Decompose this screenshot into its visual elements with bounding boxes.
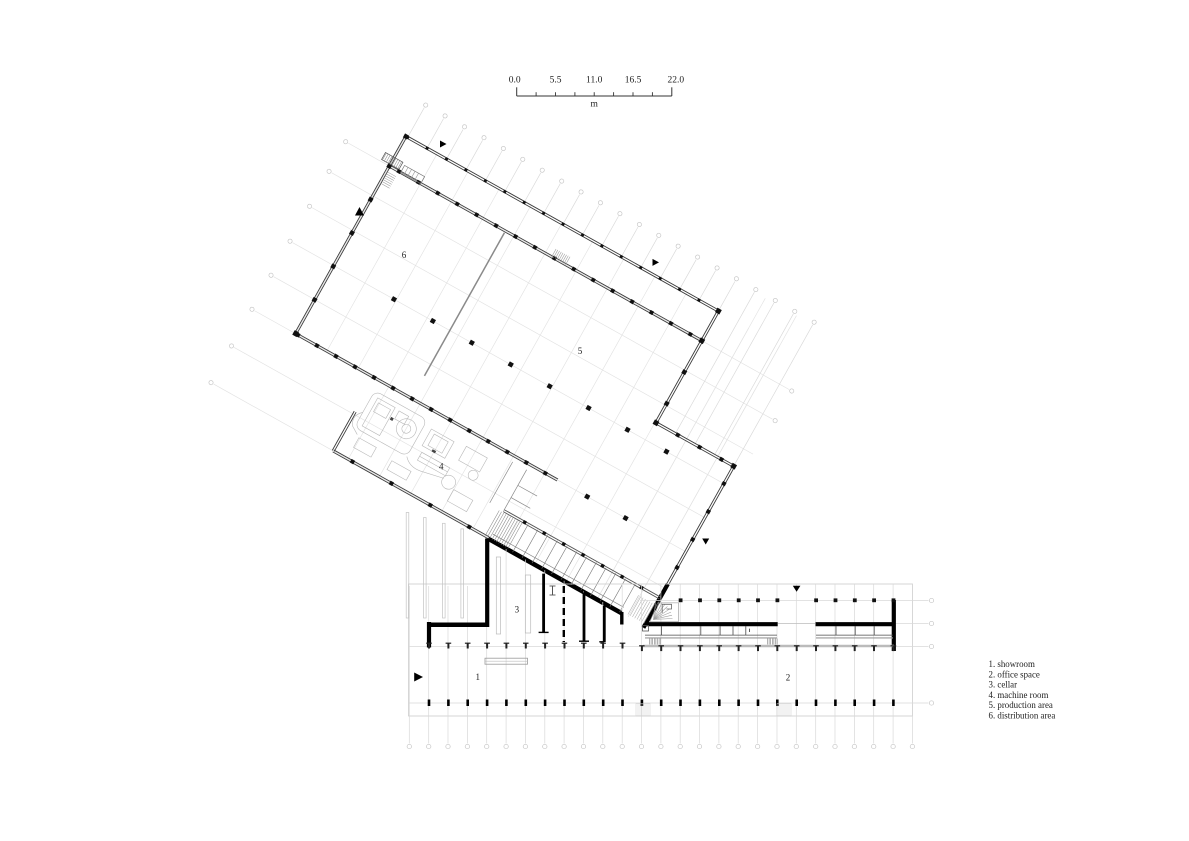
svg-text:2: 2 [786, 673, 791, 683]
svg-text:16.5: 16.5 [625, 76, 642, 86]
svg-text:4. machine room: 4. machine room [989, 690, 1049, 700]
svg-text:4: 4 [439, 462, 444, 472]
svg-text:2. office space: 2. office space [989, 669, 1040, 679]
svg-text:6: 6 [402, 250, 407, 260]
svg-text:11.0: 11.0 [586, 76, 603, 86]
svg-text:3: 3 [515, 605, 520, 615]
svg-text:1: 1 [475, 672, 480, 682]
svg-text:22.0: 22.0 [667, 76, 684, 86]
svg-text:5: 5 [578, 346, 583, 356]
svg-text:5.5: 5.5 [550, 76, 562, 86]
svg-text:6. distribution area: 6. distribution area [989, 711, 1056, 721]
svg-text:3. cellar: 3. cellar [989, 680, 1018, 690]
svg-text:m: m [591, 100, 599, 110]
svg-text:5. production area: 5. production area [989, 700, 1053, 710]
svg-text:0.0: 0.0 [509, 76, 521, 86]
svg-text:1. showroom: 1. showroom [989, 659, 1035, 669]
